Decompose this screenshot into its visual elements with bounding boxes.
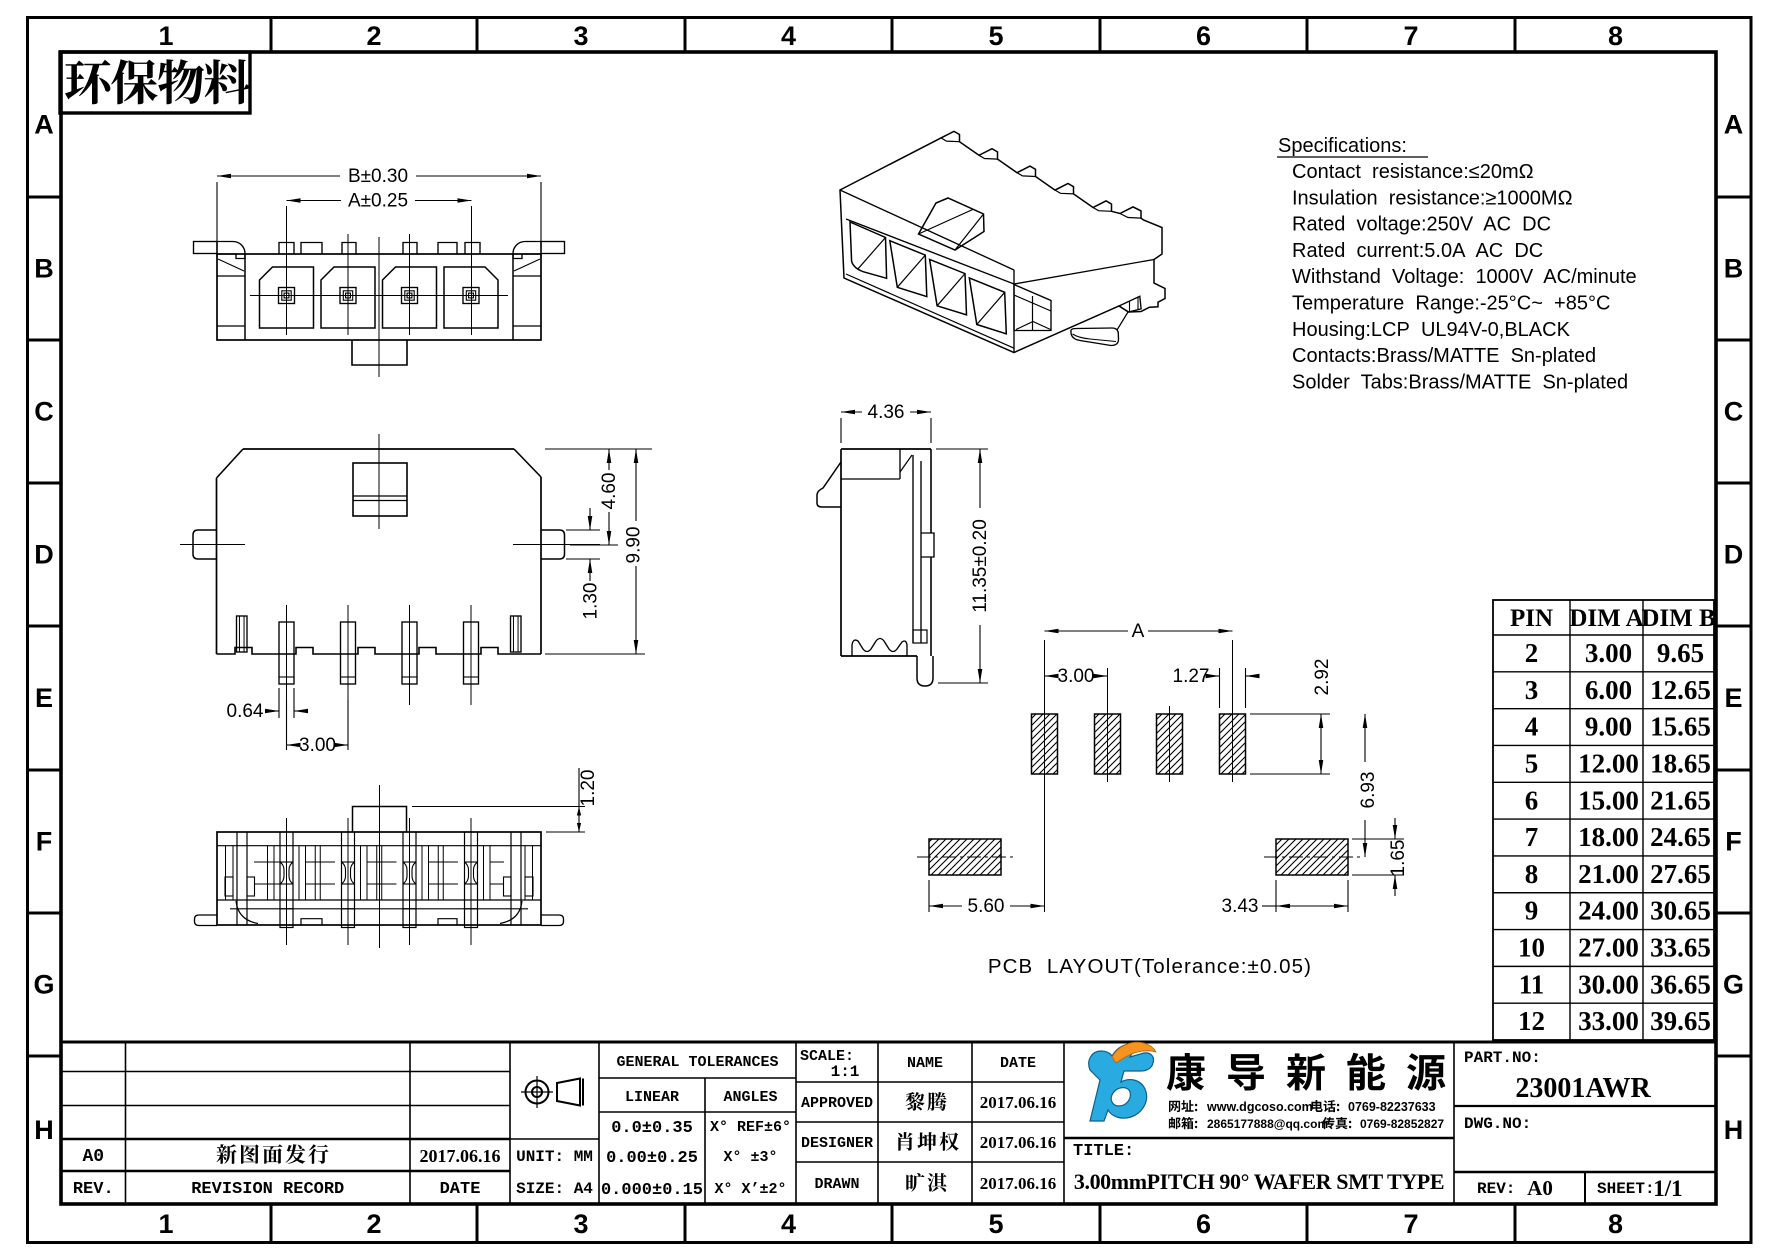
svg-text:4: 4: [781, 1209, 796, 1239]
svg-text:4.60: 4.60: [599, 473, 620, 510]
svg-text:36.65: 36.65: [1650, 969, 1711, 999]
svg-text:5: 5: [988, 1209, 1003, 1239]
svg-text:2.92: 2.92: [1312, 659, 1333, 696]
svg-text:F: F: [1725, 827, 1742, 857]
svg-text:3.00: 3.00: [1585, 638, 1632, 668]
svg-text:10: 10: [1518, 933, 1545, 963]
svg-text:18.65: 18.65: [1650, 748, 1711, 778]
svg-text:B: B: [1724, 254, 1744, 284]
svg-text:7: 7: [1403, 21, 1418, 51]
svg-text:G: G: [33, 970, 54, 1000]
svg-text:4: 4: [781, 21, 796, 51]
svg-text:1.27: 1.27: [1173, 666, 1210, 687]
svg-text:12.65: 12.65: [1650, 675, 1711, 705]
svg-text:1: 1: [158, 21, 173, 51]
svg-text:15.65: 15.65: [1650, 712, 1711, 742]
svg-text:REV.: REV.: [73, 1180, 114, 1199]
svg-text:SHEET:: SHEET:: [1597, 1180, 1655, 1198]
svg-text:9: 9: [1525, 896, 1539, 926]
svg-text:ANGLES: ANGLES: [723, 1089, 777, 1106]
svg-text:2017.06.16: 2017.06.16: [420, 1146, 501, 1166]
svg-text:A±0.25: A±0.25: [348, 191, 408, 212]
svg-text:7: 7: [1403, 1209, 1418, 1239]
svg-text:PIN: PIN: [1510, 605, 1553, 632]
svg-text:G: G: [1723, 970, 1744, 1000]
svg-text:DIM B: DIM B: [1641, 605, 1715, 632]
svg-text:DESIGNER: DESIGNER: [801, 1135, 873, 1152]
svg-text:15.00: 15.00: [1578, 785, 1639, 815]
svg-text:NAME: NAME: [907, 1055, 943, 1072]
svg-text:30.65: 30.65: [1650, 896, 1711, 926]
svg-text:2017.06.16: 2017.06.16: [980, 1174, 1057, 1193]
svg-text:2017.06.16: 2017.06.16: [980, 1093, 1057, 1112]
svg-text:1.30: 1.30: [581, 583, 602, 620]
svg-text:8: 8: [1608, 21, 1623, 51]
svg-text:Insulation resistance:≥1000MΩ: Insulation resistance:≥1000MΩ: [1292, 187, 1573, 209]
svg-text:X° X’±2°: X° X’±2°: [714, 1181, 786, 1198]
svg-text:12.00: 12.00: [1578, 748, 1639, 778]
svg-text:Rated voltage:250V AC DC: Rated voltage:250V AC DC: [1292, 214, 1551, 236]
svg-text:2017.06.16: 2017.06.16: [980, 1133, 1057, 1152]
svg-text:6.00: 6.00: [1585, 675, 1632, 705]
svg-text:Rated current:5.0A AC DC: Rated current:5.0A AC DC: [1292, 240, 1543, 262]
svg-text:4.36: 4.36: [868, 402, 905, 423]
svg-text:39.65: 39.65: [1650, 1006, 1711, 1036]
svg-text:30.00: 30.00: [1578, 969, 1639, 999]
svg-text:21.65: 21.65: [1650, 785, 1711, 815]
svg-text:LINEAR: LINEAR: [625, 1089, 679, 1106]
svg-text:27.00: 27.00: [1578, 933, 1639, 963]
svg-text:Temperature Range:-25°C~ +85: Temperature Range:-25°C~ +85°C: [1292, 293, 1610, 315]
svg-text:DATE: DATE: [1000, 1055, 1036, 1072]
svg-text:www.dgcoso.com: www.dgcoso.com: [1206, 1100, 1313, 1114]
svg-text:0.0±0.35: 0.0±0.35: [611, 1119, 693, 1138]
svg-text:A: A: [1724, 110, 1744, 140]
svg-text:6.93: 6.93: [1358, 772, 1379, 809]
svg-text:12: 12: [1518, 1006, 1545, 1036]
svg-text:27.65: 27.65: [1650, 859, 1711, 889]
svg-text:GENERAL TOLERANCES: GENERAL TOLERANCES: [616, 1054, 778, 1071]
svg-text:0.00±0.25: 0.00±0.25: [606, 1149, 698, 1168]
svg-text:0769-82237633: 0769-82237633: [1348, 1100, 1436, 1114]
svg-text:9.90: 9.90: [624, 527, 645, 564]
svg-text:2: 2: [366, 1209, 381, 1239]
svg-text:PART.NO:: PART.NO:: [1464, 1049, 1541, 1067]
svg-text:H: H: [34, 1115, 54, 1145]
svg-text:3.00mmPITCH 90° WAFER SMT TYPE: 3.00mmPITCH 90° WAFER SMT TYPE: [1074, 1169, 1444, 1194]
svg-text:PCB LAYOUT(Tolerance:±0.05): PCB LAYOUT(Tolerance:±0.05): [988, 955, 1312, 978]
svg-text:5: 5: [988, 21, 1003, 51]
svg-text:5.60: 5.60: [968, 896, 1005, 917]
svg-text:6: 6: [1196, 21, 1211, 51]
svg-text:APPROVED: APPROVED: [801, 1095, 873, 1112]
svg-text:B±0.30: B±0.30: [348, 166, 408, 187]
svg-text:11: 11: [1519, 969, 1545, 999]
svg-text:X° REF±6°: X° REF±6°: [710, 1119, 791, 1136]
svg-text:33.00: 33.00: [1578, 1006, 1639, 1036]
svg-text:3.00: 3.00: [299, 735, 336, 756]
svg-text:11.35±0.20: 11.35±0.20: [970, 519, 991, 613]
svg-text:REVISION RECORD: REVISION RECORD: [191, 1180, 344, 1199]
svg-text:UNIT: MM: UNIT: MM: [516, 1148, 593, 1166]
svg-text:9.00: 9.00: [1585, 712, 1632, 742]
svg-text:33.65: 33.65: [1650, 933, 1711, 963]
svg-text:H: H: [1724, 1115, 1744, 1145]
svg-text:A: A: [34, 110, 54, 140]
svg-text:Solder Tabs:Brass/MATTE Sn-p: Solder Tabs:Brass/MATTE Sn-plated: [1292, 371, 1628, 393]
svg-text:Contacts:Brass/MATTE Sn-plate: Contacts:Brass/MATTE Sn-plated: [1292, 345, 1596, 367]
svg-text:SIZE: A4: SIZE: A4: [516, 1180, 593, 1198]
svg-text:D: D: [34, 540, 54, 570]
svg-text:7: 7: [1525, 822, 1539, 852]
svg-text:D: D: [1724, 540, 1744, 570]
svg-text:Withstand Voltage: 1000V AC: Withstand Voltage: 1000V AC/minute: [1292, 266, 1637, 288]
svg-text:REV:: REV:: [1477, 1180, 1515, 1198]
svg-text:2: 2: [366, 21, 381, 51]
svg-text:X° ±3°: X° ±3°: [723, 1149, 777, 1166]
svg-text:3: 3: [573, 1209, 588, 1239]
svg-text:DIM A: DIM A: [1569, 605, 1643, 632]
svg-text:Contact resistance:≤20mΩ: Contact resistance:≤20mΩ: [1292, 161, 1534, 183]
svg-text:6: 6: [1525, 785, 1539, 815]
svg-text:9.65: 9.65: [1657, 638, 1704, 668]
svg-text:21.00: 21.00: [1578, 859, 1639, 889]
svg-text:Specifications:: Specifications:: [1278, 135, 1407, 157]
svg-text:24.65: 24.65: [1650, 822, 1711, 852]
svg-text:3.00: 3.00: [1058, 666, 1095, 687]
svg-text:1: 1: [158, 1209, 173, 1239]
svg-text:C: C: [1724, 397, 1744, 427]
svg-text:Housing:LCP UL94V-0,BLACK: Housing:LCP UL94V-0,BLACK: [1292, 319, 1571, 341]
svg-text:1:1: 1:1: [831, 1063, 860, 1081]
svg-text:A: A: [1132, 621, 1145, 642]
svg-text:24.00: 24.00: [1578, 896, 1639, 926]
svg-text:4: 4: [1525, 712, 1539, 742]
svg-text:8: 8: [1608, 1209, 1623, 1239]
svg-text:6: 6: [1196, 1209, 1211, 1239]
svg-text:F: F: [36, 827, 53, 857]
svg-text:DATE: DATE: [440, 1180, 481, 1199]
svg-text:A0: A0: [1527, 1176, 1553, 1200]
svg-text:E: E: [1724, 683, 1742, 713]
svg-text:0.64: 0.64: [227, 701, 264, 722]
svg-text:3: 3: [1525, 675, 1539, 705]
svg-text:2: 2: [1525, 638, 1539, 668]
svg-text:0.000±0.15: 0.000±0.15: [601, 1181, 703, 1200]
svg-text:3: 3: [573, 21, 588, 51]
svg-text:8: 8: [1525, 859, 1539, 889]
svg-text:0769-82852827: 0769-82852827: [1360, 1117, 1444, 1131]
svg-text:DWG.NO:: DWG.NO:: [1464, 1115, 1531, 1133]
svg-text:3.43: 3.43: [1222, 896, 1259, 917]
svg-text:5: 5: [1525, 748, 1539, 778]
svg-text:2865177888@qq.com: 2865177888@qq.com: [1207, 1117, 1328, 1131]
svg-text:C: C: [34, 397, 54, 427]
svg-text:B: B: [34, 254, 54, 284]
svg-text:1/1: 1/1: [1653, 1176, 1682, 1201]
svg-text:DRAWN: DRAWN: [814, 1176, 859, 1193]
svg-text:A0: A0: [82, 1147, 104, 1167]
svg-text:TITLE:: TITLE:: [1073, 1142, 1134, 1161]
svg-text:23001AWR: 23001AWR: [1515, 1073, 1651, 1104]
svg-text:18.00: 18.00: [1578, 822, 1639, 852]
svg-text:E: E: [35, 683, 53, 713]
svg-text:1.20: 1.20: [578, 770, 599, 807]
svg-text:1.65: 1.65: [1388, 840, 1409, 877]
